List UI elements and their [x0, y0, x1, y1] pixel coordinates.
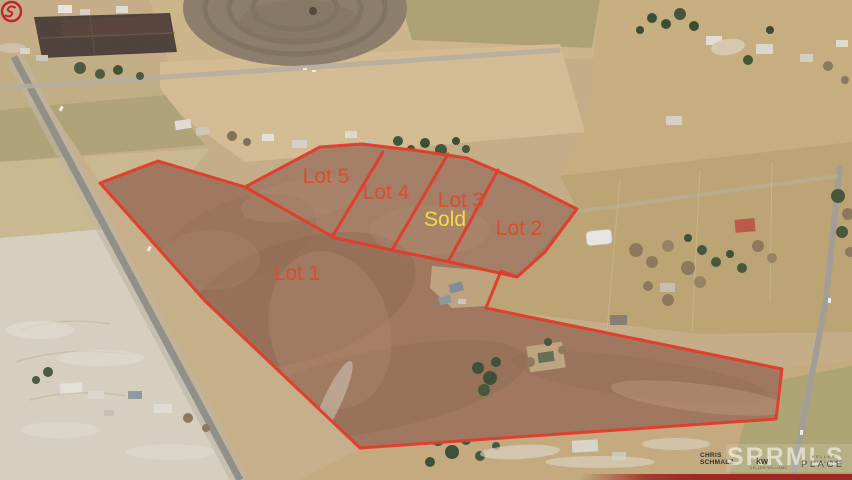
aerial-lot-map: Lot 5 Lot 4 Lot 3 Sold Lot 2 Lot 1 CHRIS… — [0, 0, 852, 480]
kw-monogram: kw — [756, 456, 768, 466]
bottom-brand-bar — [0, 474, 852, 480]
photo-grain — [0, 0, 852, 480]
aerial-photo: Lot 5 Lot 4 Lot 3 Sold Lot 2 Lot 1 — [0, 0, 852, 480]
kw-small-text: KELLER WILLIAMS — [750, 466, 787, 470]
chris-schmalz-logo-icon — [0, 0, 23, 23]
office-name: PLACE — [801, 459, 845, 470]
